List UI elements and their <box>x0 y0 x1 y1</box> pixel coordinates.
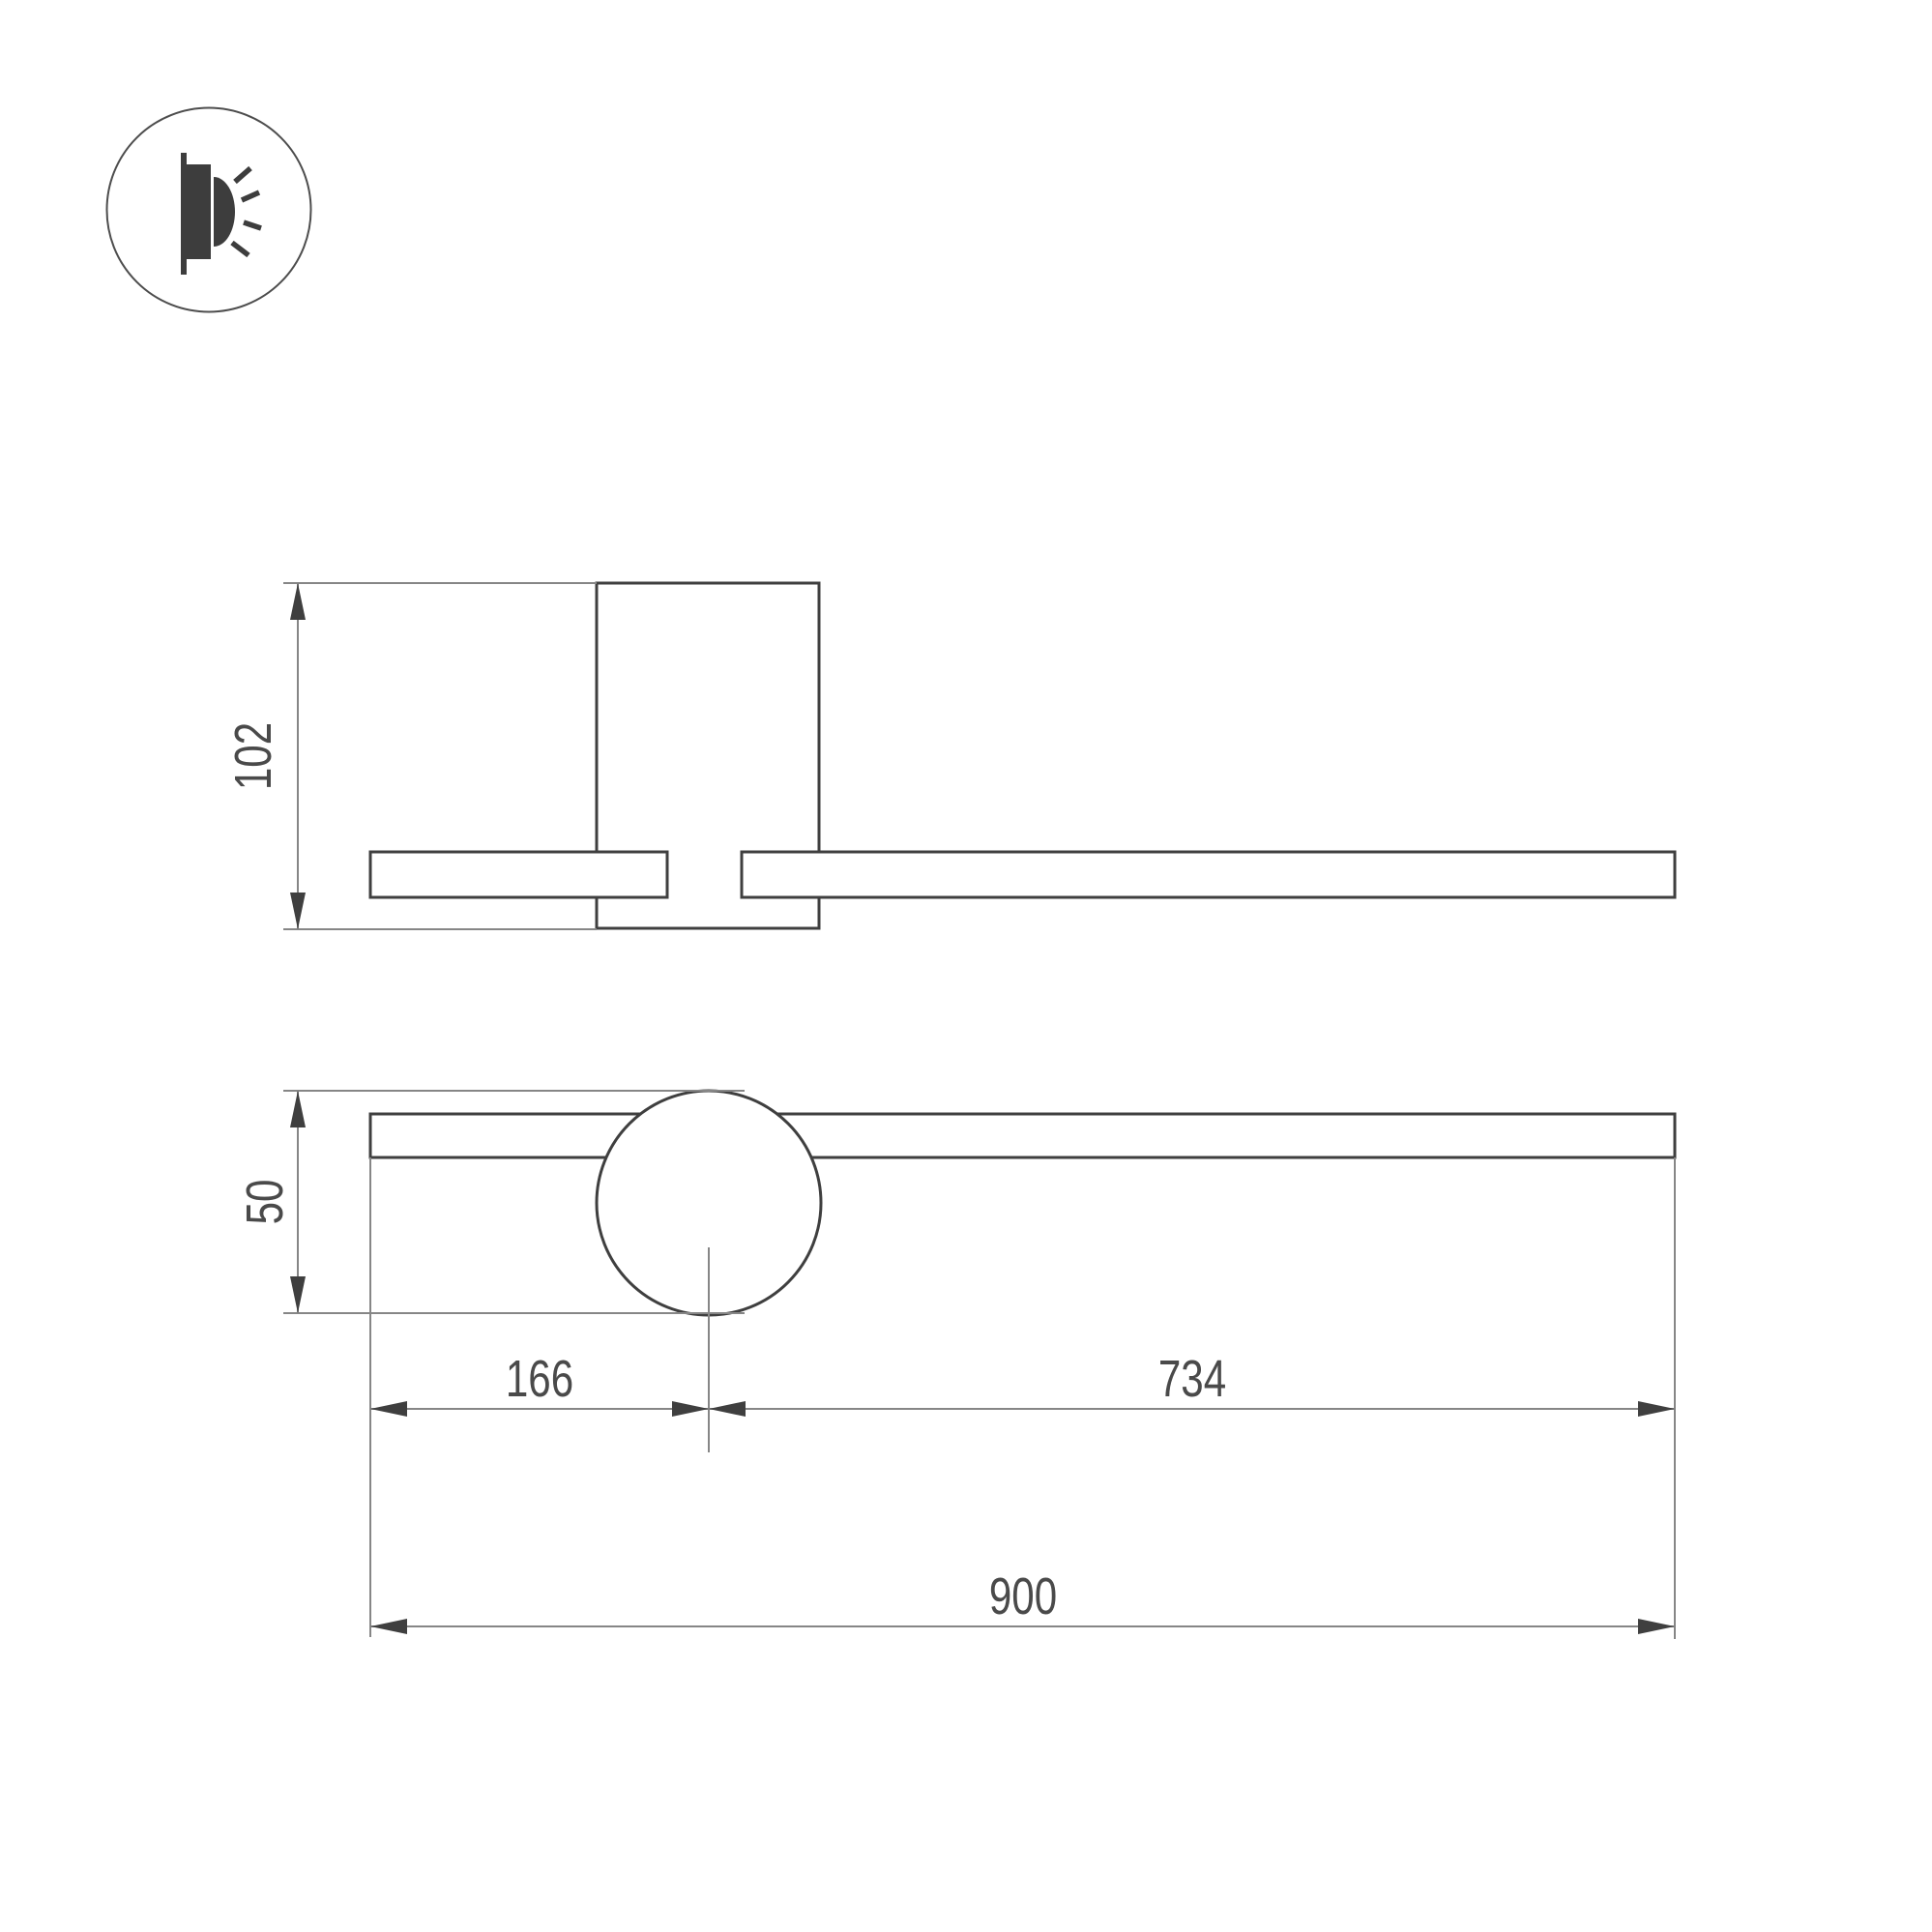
dim-label-side-height: 102 <box>227 722 279 790</box>
arrow-down <box>290 1276 306 1313</box>
dim-label-left-offset: 166 <box>506 1353 573 1405</box>
arrow-right <box>672 1401 709 1417</box>
arrow-down <box>290 893 306 929</box>
dim-label-front-height: 50 <box>239 1180 291 1225</box>
arrow-left <box>370 1619 407 1634</box>
technical-drawing-sheet: 102 50 166 734 900 <box>0 0 1932 1932</box>
side-view-arm-right-segment <box>742 852 1675 897</box>
arrow-right <box>1638 1401 1675 1417</box>
icon-lamp-body <box>187 164 211 259</box>
arrow-up <box>290 583 306 620</box>
arrow-left <box>370 1401 407 1417</box>
wall-light-icon <box>107 108 311 312</box>
arrow-up <box>290 1091 306 1127</box>
arrow-left <box>709 1401 746 1417</box>
arrow-right <box>1638 1619 1675 1634</box>
side-view-arm-left-segment <box>370 852 667 897</box>
drawing-linework <box>0 0 1932 1932</box>
dim-label-total-length: 900 <box>989 1570 1057 1623</box>
dim-label-right-offset: 734 <box>1158 1353 1226 1405</box>
side-view <box>370 583 1675 928</box>
icon-wall-line <box>181 153 187 275</box>
front-view-arm-bar <box>370 1114 1675 1157</box>
